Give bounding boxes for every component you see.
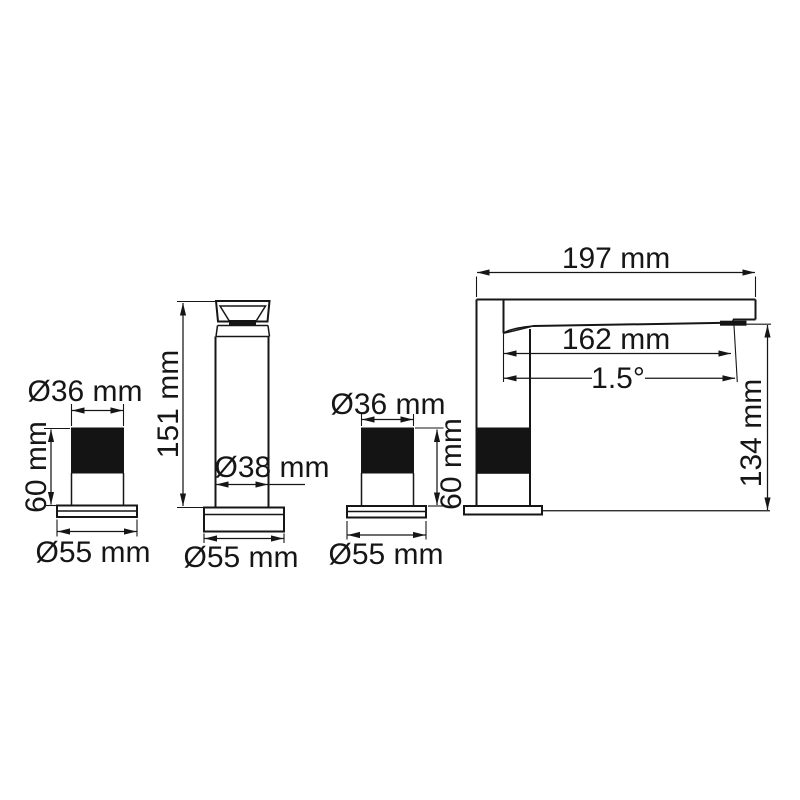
left-handle-view: Ø36 mm 60 mm Ø55 mm — [20, 375, 151, 569]
dim-label-left-handle-height: 60 mm — [20, 421, 53, 513]
dim-label-spout-angle: 1.5° — [591, 362, 645, 395]
side-column-grip-band — [477, 428, 531, 473]
dim-label-spout-body-diameter: Ø38 mm — [214, 451, 329, 484]
spout-outlet-slot — [230, 321, 256, 326]
right-handle-view: Ø36 mm 60 mm Ø55 mm — [328, 388, 468, 571]
side-base-flange — [464, 506, 542, 515]
spout-side-view: 197 mm 162 mm 1.5° 134 mm — [464, 242, 771, 515]
spout-base-flange — [204, 508, 284, 532]
spout-front-view: 151 mm Ø38 mm Ø55 mm — [152, 301, 330, 574]
dim-label-spout-tip-height: 134 mm — [735, 379, 768, 487]
dim-label-left-handle-base-diameter: Ø55 mm — [35, 536, 150, 569]
faucet-dimension-drawing: Ø36 mm 60 mm Ø55 mm 151 mm — [0, 0, 800, 800]
dim-label-spout-height: 151 mm — [152, 350, 185, 458]
dim-label-left-handle-top-diameter: Ø36 mm — [27, 375, 142, 408]
dim-label-right-handle-top-diameter: Ø36 mm — [330, 388, 445, 421]
drawing-canvas: Ø36 mm 60 mm Ø55 mm 151 mm — [0, 0, 800, 800]
dim-label-spout-reach: 162 mm — [562, 323, 670, 356]
dim-label-right-handle-height: 60 mm — [435, 418, 468, 510]
dim-label-spout-base-diameter: Ø55 mm — [183, 541, 298, 574]
right-handle-grip — [362, 428, 414, 473]
spout-aerator — [721, 321, 747, 325]
dim-label-spout-overall-length: 197 mm — [562, 242, 670, 275]
dim-label-right-handle-base-diameter: Ø55 mm — [328, 538, 443, 571]
left-handle-grip — [72, 428, 124, 473]
